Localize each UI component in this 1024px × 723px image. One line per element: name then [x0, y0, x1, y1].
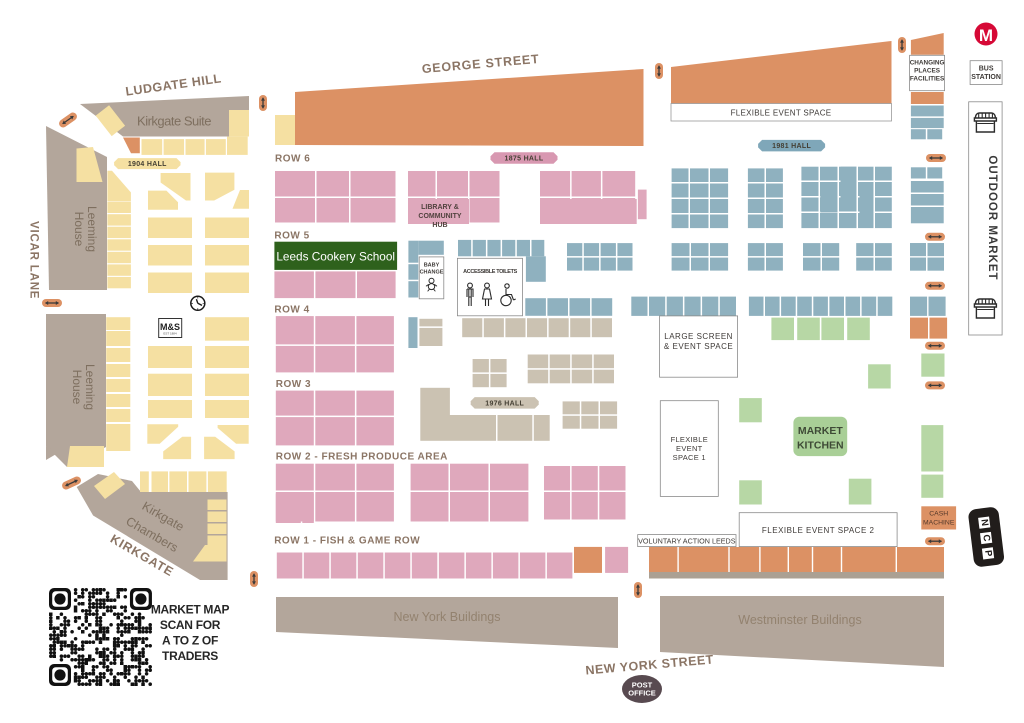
svg-text:FLEXIBLE EVENT SPACE 2: FLEXIBLE EVENT SPACE 2	[762, 526, 875, 535]
svg-text:VOLUNTARY ACTION LEEDS: VOLUNTARY ACTION LEEDS	[638, 537, 736, 546]
svg-text:M: M	[979, 26, 993, 45]
svg-text:M&S: M&S	[160, 322, 180, 332]
svg-text:Westminster Buildings: Westminster Buildings	[738, 613, 861, 627]
svg-text:ROW 3: ROW 3	[276, 379, 311, 390]
svg-text:STATION: STATION	[971, 74, 1001, 81]
svg-text:CHANGING: CHANGING	[910, 60, 945, 67]
svg-text:ROW 5: ROW 5	[274, 231, 309, 242]
svg-text:House: House	[70, 370, 84, 405]
svg-text:LARGE SCREEN: LARGE SCREEN	[664, 332, 733, 341]
svg-text:EST 1884: EST 1884	[163, 332, 177, 336]
svg-text:Leeming: Leeming	[83, 364, 97, 410]
svg-text:ROW 6: ROW 6	[275, 154, 310, 165]
svg-text:OUTDOOR MARKET: OUTDOOR MARKET	[986, 155, 998, 280]
svg-text:1875 HALL: 1875 HALL	[505, 156, 544, 163]
svg-text:House: House	[72, 212, 86, 247]
svg-text:CASH: CASH	[929, 511, 948, 518]
svg-text:MARKET MAP: MARKET MAP	[151, 603, 230, 617]
svg-text:CHANGE: CHANGE	[420, 270, 444, 276]
svg-text:MARKET: MARKET	[798, 425, 843, 437]
svg-text:FLEXIBLE: FLEXIBLE	[671, 435, 708, 444]
svg-text:New York Buildings: New York Buildings	[393, 610, 500, 624]
svg-text:1981 HALL: 1981 HALL	[772, 143, 811, 150]
svg-text:HUB: HUB	[432, 222, 447, 229]
svg-text:TRADERS: TRADERS	[162, 649, 218, 663]
svg-text:& EVENT SPACE: & EVENT SPACE	[664, 342, 733, 351]
svg-text:1904 HALL: 1904 HALL	[128, 161, 167, 168]
svg-text:ROW 2 - FRESH PRODUCE AREA: ROW 2 - FRESH PRODUCE AREA	[276, 452, 448, 463]
svg-text:BABY: BABY	[424, 263, 440, 269]
svg-text:SCAN FOR: SCAN FOR	[160, 618, 221, 632]
svg-text:ROW 4: ROW 4	[274, 305, 309, 316]
svg-text:EVENT: EVENT	[676, 444, 703, 453]
svg-text:FLEXIBLE EVENT SPACE: FLEXIBLE EVENT SPACE	[731, 109, 832, 118]
svg-text:COMMUNITY: COMMUNITY	[418, 213, 461, 220]
svg-text:FACILITIES: FACILITIES	[910, 76, 945, 83]
svg-text:LIBRARY &: LIBRARY &	[421, 204, 459, 211]
svg-text:Leeds Cookery School: Leeds Cookery School	[276, 249, 395, 263]
svg-text:Kirkgate Suite: Kirkgate Suite	[137, 114, 211, 129]
svg-text:OFFICE: OFFICE	[628, 689, 656, 698]
svg-text:Leeming: Leeming	[85, 206, 99, 252]
svg-text:VICAR LANE: VICAR LANE	[28, 221, 40, 299]
svg-text:MACHINE: MACHINE	[923, 520, 955, 527]
svg-text:A TO Z OF: A TO Z OF	[162, 634, 218, 648]
svg-text:BUS: BUS	[979, 66, 994, 73]
svg-text:ACCESSIBLE TOILETS: ACCESSIBLE TOILETS	[463, 269, 517, 275]
svg-text:PLACES: PLACES	[914, 68, 941, 75]
svg-text:ROW 1 - FISH & GAME ROW: ROW 1 - FISH & GAME ROW	[274, 536, 420, 547]
svg-text:KITCHEN: KITCHEN	[797, 440, 844, 452]
svg-text:1976 HALL: 1976 HALL	[485, 400, 524, 407]
svg-text:SPACE 1: SPACE 1	[673, 453, 706, 462]
